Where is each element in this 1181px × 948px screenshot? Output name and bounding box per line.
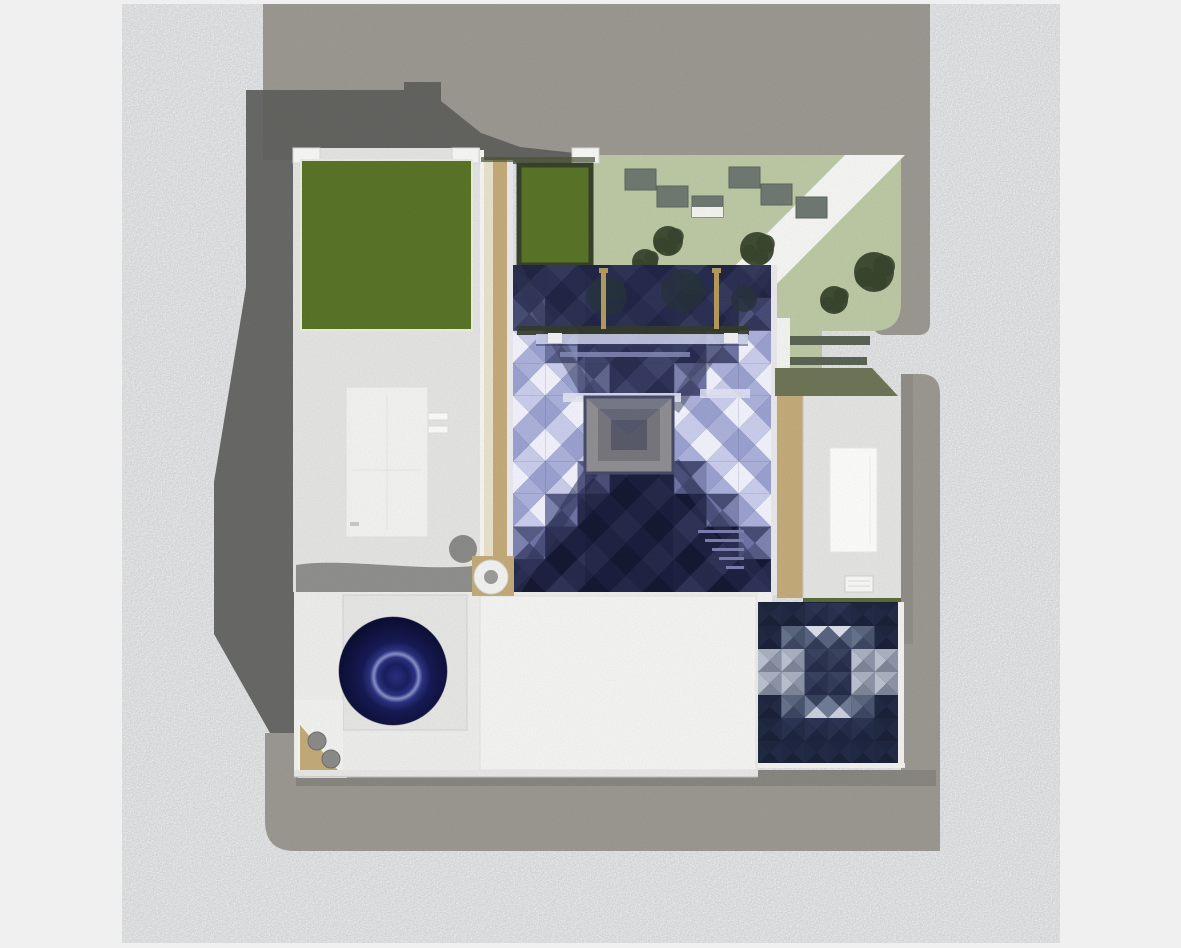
aerial-render-svg xyxy=(0,0,1181,948)
render-canvas xyxy=(0,0,1181,948)
grain-overlay xyxy=(122,4,1060,943)
